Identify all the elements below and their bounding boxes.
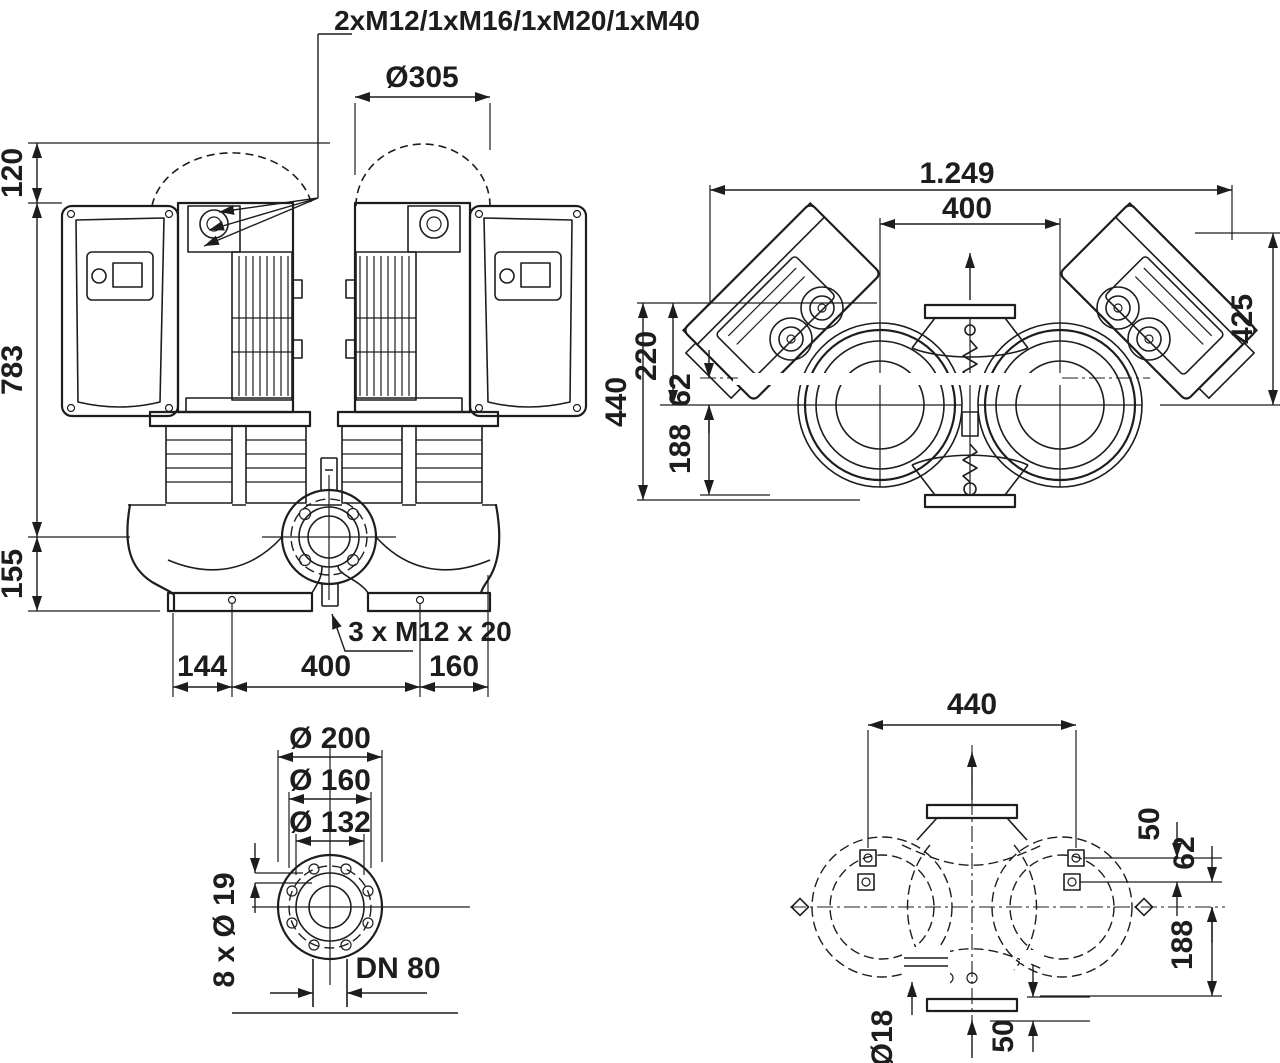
clearance-arc-left <box>152 153 312 206</box>
dim-height-155: 155 <box>0 549 29 599</box>
flange-dimensions: Ø 200 Ø 160 Ø 132 8 x Ø 19 DN 80 <box>208 722 441 993</box>
center-flange <box>262 475 396 600</box>
dim-raised-face: Ø 132 <box>289 806 371 839</box>
dim-found-50-lower: 50 <box>987 1019 1020 1052</box>
front-view: 2xM12/1xM16/1xM20/1xM40 Ø305 120 783 155… <box>0 5 700 697</box>
right-motor <box>338 203 498 426</box>
dim-bolt-400: 400 <box>301 650 351 683</box>
dim-gland-label: 2xM12/1xM16/1xM20/1xM40 <box>334 5 700 36</box>
dim-bolt-holes: 8 x Ø 19 <box>208 872 241 987</box>
pump-housing <box>127 458 499 611</box>
foundation-view: 440 50 62 188 Ø18 50 <box>790 688 1225 1063</box>
dim-module-circle: Ø305 <box>385 61 458 94</box>
redaction-stripe <box>733 373 1065 385</box>
gland-leader <box>204 34 352 246</box>
top-view: 1.249 400 425 440 220 62 188 <box>600 157 1280 507</box>
foundation-centerlines <box>790 745 1225 1055</box>
center-ports <box>912 305 1028 507</box>
dim-module-425: 425 <box>1226 294 1259 344</box>
dim-found-188: 188 <box>1166 920 1199 970</box>
dim-top-220: 220 <box>630 331 663 381</box>
pump-lanterns <box>166 426 482 503</box>
dim-found-50-upper: 50 <box>1133 807 1166 840</box>
dim-found-440: 440 <box>947 688 997 721</box>
pump-dimensional-drawing: 2xM12/1xM16/1xM20/1xM40 Ø305 120 783 155… <box>0 0 1280 1063</box>
foundation-dimensions: 440 50 62 188 Ø18 50 <box>866 688 1222 1063</box>
dim-overall-1249: 1.249 <box>919 157 994 190</box>
fan-left <box>798 323 962 487</box>
dim-foot-144: 144 <box>177 650 227 683</box>
dim-depth-440: 440 <box>600 377 633 427</box>
dim-plug-label: 3 x M12 x 20 <box>348 616 511 647</box>
dim-shaft-400: 400 <box>942 192 992 225</box>
dim-edge-188: 188 <box>664 424 697 474</box>
dim-port-62: 62 <box>664 373 697 406</box>
dim-bolt-circle: Ø 160 <box>289 764 371 797</box>
dim-flange-od: Ø 200 <box>289 722 371 755</box>
right-module <box>470 206 586 416</box>
left-module <box>62 206 178 416</box>
redaction-boxes <box>902 947 1044 988</box>
dim-nominal-dn80: DN 80 <box>355 952 440 985</box>
dim-height-783: 783 <box>0 345 29 395</box>
dim-clearance-120: 120 <box>0 148 29 198</box>
left-motor <box>150 203 310 426</box>
dim-found-62: 62 <box>1168 836 1201 869</box>
drawing-canvas: 2xM12/1xM16/1xM20/1xM40 Ø305 120 783 155… <box>0 0 1280 1063</box>
front-dimensions: 2xM12/1xM16/1xM20/1xM40 Ø305 120 783 155… <box>0 5 700 697</box>
dim-hole-dia-18: Ø18 <box>866 1010 899 1063</box>
clearance-arc-right <box>356 144 490 206</box>
flange-view: Ø 200 Ø 160 Ø 132 8 x Ø 19 DN 80 <box>208 722 470 1013</box>
dim-foot-160: 160 <box>429 650 479 683</box>
fan-right <box>978 323 1142 487</box>
